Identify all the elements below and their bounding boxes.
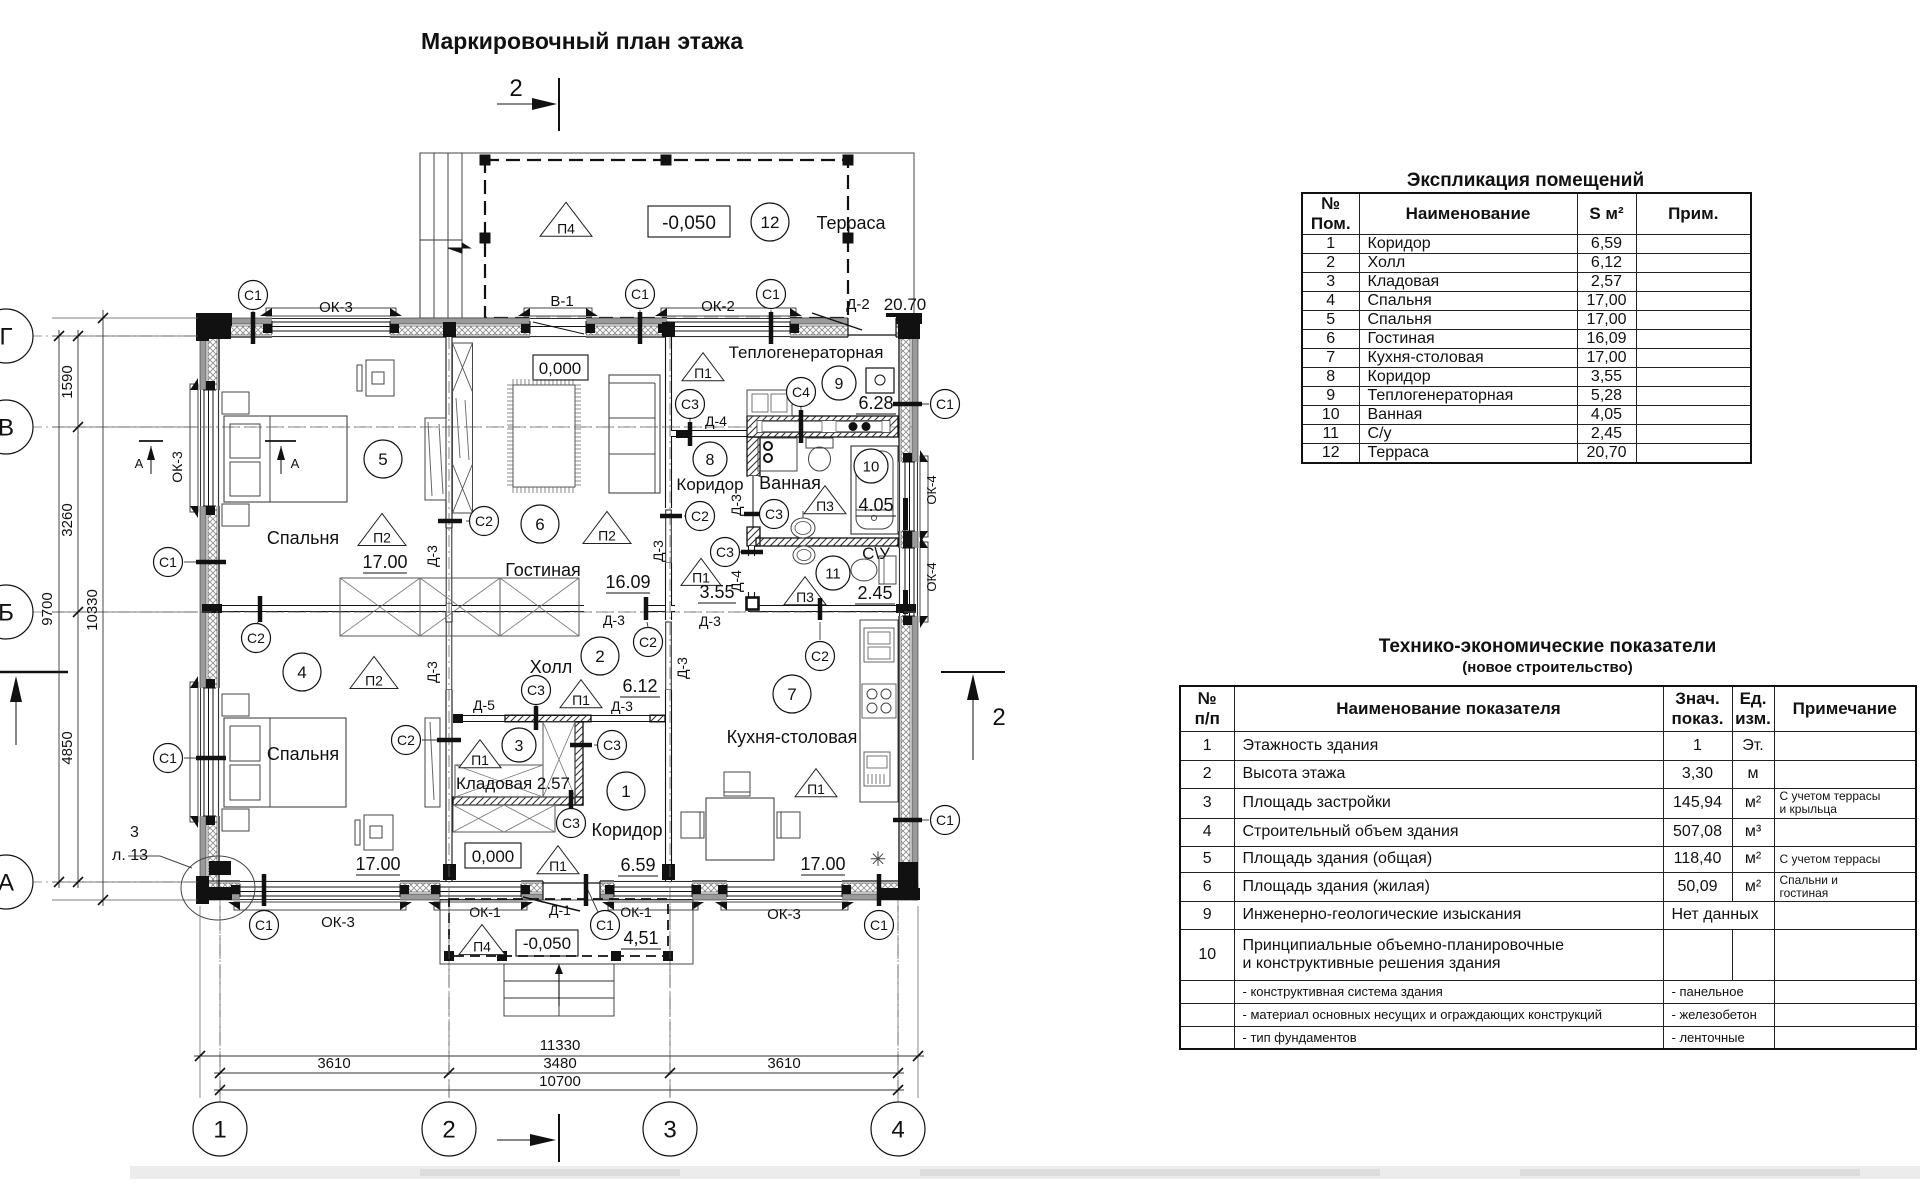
svg-text:С1: С1: [936, 812, 954, 828]
svg-text:С1: С1: [631, 286, 649, 302]
svg-text:6.28: 6.28: [858, 393, 893, 413]
svg-text:П1: П1: [549, 858, 567, 874]
svg-text:В: В: [0, 415, 14, 442]
svg-text:С1: С1: [870, 917, 888, 933]
svg-text:4,51: 4,51: [623, 928, 658, 948]
svg-text:10330: 10330: [84, 589, 101, 631]
svg-text:А: А: [0, 870, 14, 897]
svg-text:Спальня: Спальня: [267, 528, 339, 548]
svg-text:0,000: 0,000: [472, 847, 515, 866]
svg-text:С3: С3: [527, 682, 545, 698]
svg-text:16.09: 16.09: [605, 572, 650, 592]
svg-text:4: 4: [297, 663, 306, 682]
svg-text:2: 2: [509, 75, 522, 102]
svg-text:Д-4: Д-4: [705, 413, 727, 429]
svg-text:3: 3: [130, 824, 139, 841]
svg-text:Гостиная: Гостиная: [505, 560, 581, 580]
svg-text:Кладовая 2.57: Кладовая 2.57: [456, 774, 570, 793]
svg-text:П1: П1: [471, 752, 489, 768]
svg-text:С2: С2: [811, 648, 829, 664]
svg-text:ОК-2: ОК-2: [701, 298, 735, 315]
svg-text:Д-1: Д-1: [549, 902, 571, 918]
svg-text:Г: Г: [0, 324, 13, 351]
svg-text:2.45: 2.45: [857, 583, 892, 603]
svg-text:3610: 3610: [317, 1055, 350, 1072]
svg-text:8: 8: [706, 452, 715, 469]
svg-text:С4: С4: [792, 384, 810, 400]
svg-text:С2: С2: [639, 634, 657, 650]
svg-text:С2: С2: [397, 732, 415, 748]
svg-text:3: 3: [663, 1117, 676, 1144]
svg-text:17.00: 17.00: [362, 552, 407, 572]
svg-text:Д-2: Д-2: [846, 296, 870, 313]
svg-text:Терраса: Терраса: [816, 213, 886, 233]
svg-text:С\У: С\У: [862, 544, 890, 563]
svg-text:С1: С1: [159, 750, 177, 766]
svg-text:Д-3: Д-3: [674, 657, 690, 679]
svg-text:Спальня: Спальня: [267, 744, 339, 764]
svg-text:С2: С2: [247, 630, 265, 646]
svg-text:С1: С1: [596, 917, 614, 933]
svg-text:4: 4: [891, 1117, 904, 1144]
svg-text:0,000: 0,000: [539, 359, 582, 378]
svg-text:ОК-4: ОК-4: [924, 562, 939, 591]
svg-text:4.05: 4.05: [858, 495, 893, 515]
svg-text:Коридор: Коридор: [676, 475, 743, 494]
svg-text:Д-5: Д-5: [473, 697, 495, 713]
svg-text:В-1: В-1: [550, 293, 573, 310]
svg-text:ОК-1: ОК-1: [469, 904, 501, 920]
svg-text:С3: С3: [603, 737, 621, 753]
svg-text:л. 13: л. 13: [112, 847, 148, 864]
svg-text:Д-3: Д-3: [699, 613, 721, 629]
svg-text:10: 10: [863, 458, 880, 475]
svg-text:11330: 11330: [540, 1037, 581, 1054]
svg-text:Д-3: Д-3: [611, 698, 633, 714]
svg-text:ОК-1: ОК-1: [620, 904, 652, 920]
svg-text:П1: П1: [694, 365, 712, 381]
svg-text:Д-3: Д-3: [424, 545, 440, 567]
svg-text:9: 9: [835, 376, 844, 393]
svg-text:✳: ✳: [870, 849, 887, 871]
svg-text:ОК-3: ОК-3: [319, 299, 353, 316]
svg-text:П4: П4: [473, 939, 491, 955]
svg-text:17.00: 17.00: [355, 854, 400, 874]
svg-text:3480: 3480: [543, 1055, 576, 1072]
svg-text:Б: Б: [0, 600, 14, 627]
svg-text:Д-3: Д-3: [424, 661, 440, 683]
svg-text:Д-3: Д-3: [728, 494, 744, 516]
svg-text:11: 11: [825, 565, 841, 582]
svg-text:4850: 4850: [59, 731, 76, 764]
svg-text:ОК-3: ОК-3: [767, 906, 801, 923]
svg-text:А: А: [135, 456, 144, 471]
svg-text:С3: С3: [562, 815, 580, 831]
svg-text:Кухня-столовая: Кухня-столовая: [727, 727, 858, 747]
svg-text:П1: П1: [807, 781, 825, 797]
svg-text:Д-3: Д-3: [650, 540, 666, 562]
svg-text:12: 12: [761, 213, 780, 232]
svg-text:ОК-3: ОК-3: [321, 914, 355, 931]
svg-text:П2: П2: [365, 672, 383, 688]
svg-text:С3: С3: [681, 396, 699, 412]
svg-text:С1: С1: [244, 287, 262, 303]
svg-text:А: А: [291, 456, 300, 471]
svg-text:3: 3: [515, 738, 524, 755]
svg-text:1590: 1590: [59, 365, 76, 398]
svg-text:С3: С3: [765, 506, 783, 522]
svg-text:П1: П1: [572, 692, 590, 708]
svg-text:9700: 9700: [39, 592, 56, 625]
svg-text:С1: С1: [255, 917, 273, 933]
svg-text:Холл: Холл: [530, 657, 572, 677]
svg-text:-0,050: -0,050: [523, 934, 571, 953]
svg-text:1: 1: [213, 1117, 226, 1144]
svg-text:ОК-4: ОК-4: [924, 475, 939, 504]
svg-text:2: 2: [595, 647, 604, 666]
svg-text:Д-4: Д-4: [728, 570, 744, 592]
svg-text:Теплогенераторная: Теплогенераторная: [729, 343, 884, 362]
svg-text:С1: С1: [762, 286, 780, 302]
svg-text:6.12: 6.12: [622, 676, 657, 696]
svg-text:10700: 10700: [539, 1073, 581, 1090]
svg-text:П3: П3: [796, 589, 814, 605]
svg-text:П4: П4: [557, 220, 575, 236]
svg-text:3260: 3260: [59, 503, 76, 536]
svg-text:6.59: 6.59: [620, 855, 655, 875]
svg-text:2: 2: [442, 1117, 455, 1144]
svg-text:С3: С3: [716, 544, 734, 560]
svg-text:Д-3: Д-3: [603, 612, 625, 628]
svg-text:7: 7: [787, 685, 796, 704]
svg-text:ОК-3: ОК-3: [169, 451, 185, 483]
svg-text:П3: П3: [816, 498, 834, 514]
svg-text:С2: С2: [475, 513, 493, 529]
svg-text:2: 2: [992, 704, 1005, 731]
svg-text:6: 6: [535, 515, 544, 534]
svg-text:3610: 3610: [767, 1055, 800, 1072]
svg-text:П2: П2: [598, 527, 616, 543]
svg-text:17.00: 17.00: [800, 854, 845, 874]
svg-text:5: 5: [378, 450, 387, 469]
svg-text:С1: С1: [936, 396, 954, 412]
svg-text:Коридор: Коридор: [591, 820, 662, 840]
svg-text:-0,050: -0,050: [662, 213, 716, 234]
svg-text:С2: С2: [691, 508, 709, 524]
svg-text:20.70: 20.70: [884, 295, 927, 314]
svg-text:1: 1: [621, 782, 630, 801]
svg-text:П2: П2: [373, 529, 391, 545]
svg-text:Ванная: Ванная: [759, 473, 821, 493]
svg-text:С1: С1: [159, 554, 177, 570]
